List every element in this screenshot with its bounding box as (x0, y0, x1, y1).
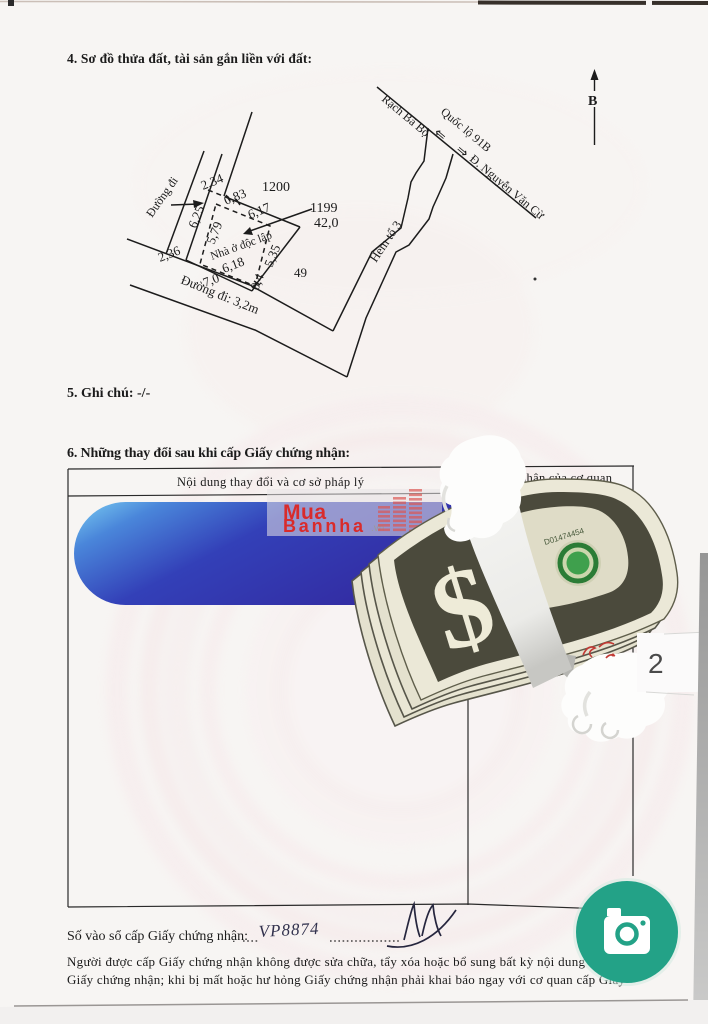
svg-text:VP8874: VP8874 (258, 919, 320, 941)
svg-text:6. Những thay đổi sau khi cấp: 6. Những thay đổi sau khi cấp Giấy chứng… (67, 446, 350, 461)
svg-text:42,0: 42,0 (314, 216, 339, 231)
svg-text:Giấy chứng nhận; khi bị mất ho: Giấy chứng nhận; khi bị mất hoặc hư hỏng… (67, 972, 626, 987)
svg-text:Bannha: Bannha (283, 516, 366, 536)
svg-text:5. Ghi chú: -/-: 5. Ghi chú: -/- (67, 386, 151, 401)
svg-text:B: B (588, 94, 597, 109)
svg-text:Số vào sổ cấp Giấy chứng nhận:: Số vào sổ cấp Giấy chứng nhận: (67, 929, 248, 944)
svg-text:2: 2 (648, 648, 664, 679)
svg-text:Người được cấp Giấy chứng nhận: Người được cấp Giấy chứng nhận không đượ… (67, 954, 586, 969)
svg-text:49: 49 (294, 265, 307, 280)
svg-text:Nội dung thay đổi và cơ sở phá: Nội dung thay đổi và cơ sở pháp lý (177, 475, 365, 489)
svg-text:1199: 1199 (310, 201, 337, 216)
svg-text:4. Sơ đồ thửa đất, tài sản gắn: 4. Sơ đồ thửa đất, tài sản gắn liền với … (67, 51, 312, 66)
svg-text:1200: 1200 (262, 180, 290, 195)
